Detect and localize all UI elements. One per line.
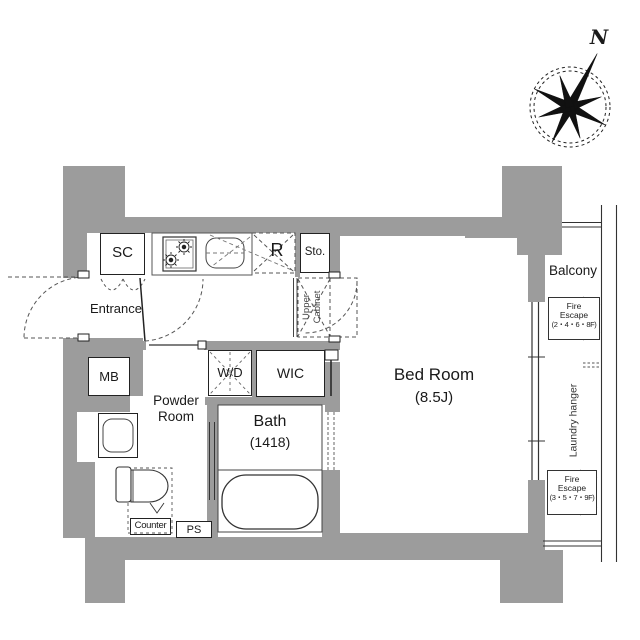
- laundry-hanger-label: Laundry hanger: [568, 356, 581, 486]
- counter-label: Counter: [130, 521, 171, 531]
- compass-icon: [516, 35, 633, 160]
- meter-box-label: MB: [88, 370, 130, 384]
- upper-cabinet-label: Upper Cabinet: [302, 275, 324, 339]
- shoe-closet-bifold-swing: [101, 279, 145, 290]
- kitchen-partition-line: [294, 278, 298, 337]
- washbasin-icon: [103, 419, 133, 452]
- storage-label: Sto.: [300, 246, 330, 259]
- hall-door: [140, 278, 203, 341]
- bathtub-icon: [222, 475, 318, 529]
- pipe-space-label: PS: [176, 524, 212, 536]
- bedroom-window: [528, 302, 545, 480]
- bath-size-label: (1418): [218, 435, 322, 450]
- wic-label: WIC: [256, 366, 325, 381]
- powder-room-label: Powder Room: [135, 393, 217, 425]
- refrigerator-label: R: [262, 241, 292, 261]
- compass-north-label: N: [584, 26, 614, 48]
- sink-icon: [206, 238, 244, 268]
- fire-escape-arrows: [548, 315, 554, 495]
- bedroom-label: Bed Room: [340, 366, 528, 385]
- floor-plan: SC R Sto. Upper Cabinet Entrance MB W/D …: [0, 0, 640, 640]
- entry-door-swing: [8, 277, 85, 338]
- shoe-closet-label: SC: [100, 245, 145, 262]
- entrance-label: Entrance: [86, 302, 146, 316]
- bath-window-dashes: [328, 412, 334, 470]
- bedroom-size-label: (8.5J): [340, 390, 528, 407]
- fire-escape-upper-box: Fire Escape (2・4・6・8F): [548, 297, 600, 340]
- washer-dryer-label: W/D: [208, 366, 252, 380]
- stove-icon: [163, 237, 196, 271]
- bath-label: Bath: [218, 413, 322, 431]
- toilet-icon: [116, 467, 168, 513]
- balcony-label: Balcony: [544, 264, 602, 279]
- laundry-hanger-marks: [583, 363, 601, 367]
